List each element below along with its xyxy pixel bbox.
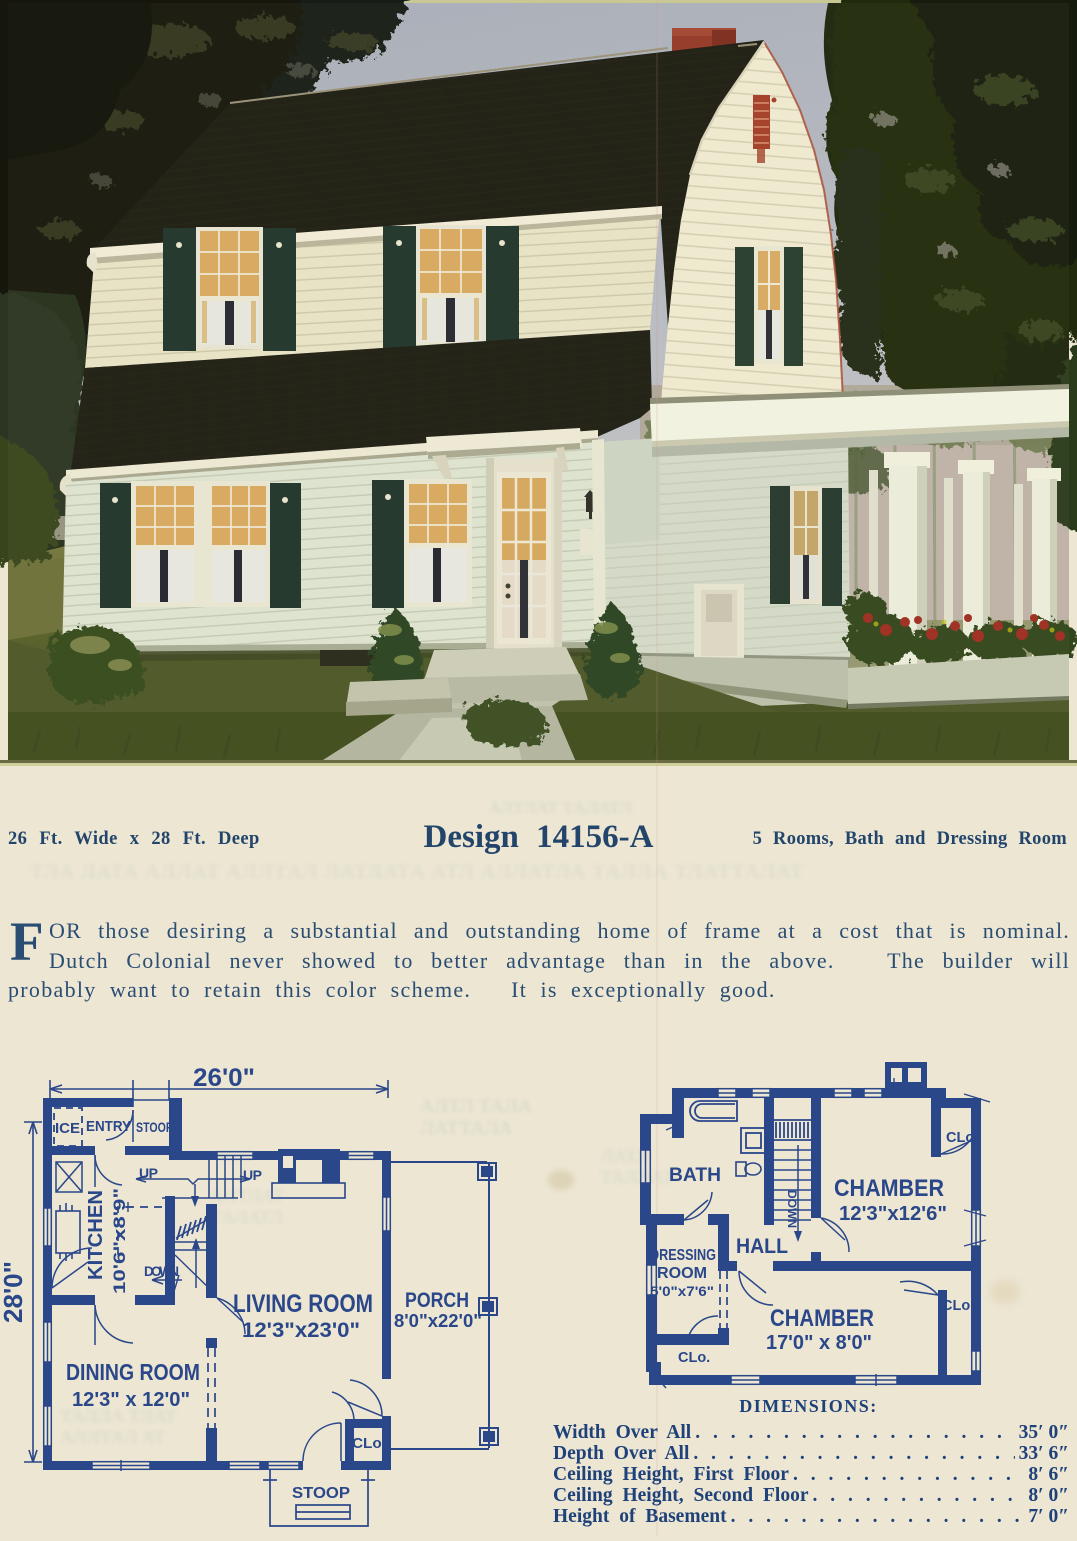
- svg-text:CLo.: CLo.: [352, 1436, 386, 1452]
- svg-text:5'0"x7'6": 5'0"x7'6": [650, 1283, 714, 1299]
- svg-text:HALL: HALL: [736, 1235, 788, 1258]
- svg-text:CLo: CLo: [942, 1298, 970, 1314]
- svg-text:26'0": 26'0": [193, 1064, 255, 1092]
- svg-text:ENTRY: ENTRY: [86, 1119, 131, 1135]
- svg-text:KITCHEN: KITCHEN: [85, 1190, 107, 1280]
- svg-text:8'0"x22'0": 8'0"x22'0": [394, 1311, 482, 1331]
- svg-text:CHAMBER: CHAMBER: [834, 1175, 944, 1202]
- svg-text:UP: UP: [243, 1167, 262, 1183]
- svg-text:10'6"x8'9": 10'6"x8'9": [110, 1188, 129, 1294]
- svg-text:DOWN: DOWN: [785, 1190, 799, 1228]
- svg-text:17'0" x 8'0": 17'0" x 8'0": [766, 1332, 872, 1354]
- svg-text:STOOP: STOOP: [136, 1120, 173, 1135]
- svg-text:DRESSING: DRESSING: [650, 1247, 716, 1264]
- svg-text:UP: UP: [139, 1165, 158, 1181]
- svg-text:LIVING ROOM: LIVING ROOM: [233, 1290, 373, 1318]
- svg-text:CHAMBER: CHAMBER: [770, 1305, 874, 1332]
- svg-text:ICE: ICE: [55, 1121, 80, 1137]
- svg-text:BATH: BATH: [669, 1165, 721, 1186]
- svg-text:ROOM: ROOM: [657, 1265, 707, 1282]
- svg-text:12'3"x12'6": 12'3"x12'6": [839, 1203, 947, 1225]
- svg-text:28'0": 28'0": [0, 1261, 28, 1323]
- svg-text:CLo.: CLo.: [678, 1350, 710, 1366]
- svg-text:STOOP: STOOP: [292, 1485, 350, 1502]
- svg-text:12'3"x23'0": 12'3"x23'0": [242, 1319, 360, 1342]
- svg-text:PORCH: PORCH: [405, 1289, 469, 1312]
- svg-text:12'3" x 12'0": 12'3" x 12'0": [72, 1389, 190, 1411]
- svg-text:CLo: CLo: [946, 1130, 974, 1146]
- svg-text:DINING ROOM: DINING ROOM: [66, 1359, 200, 1385]
